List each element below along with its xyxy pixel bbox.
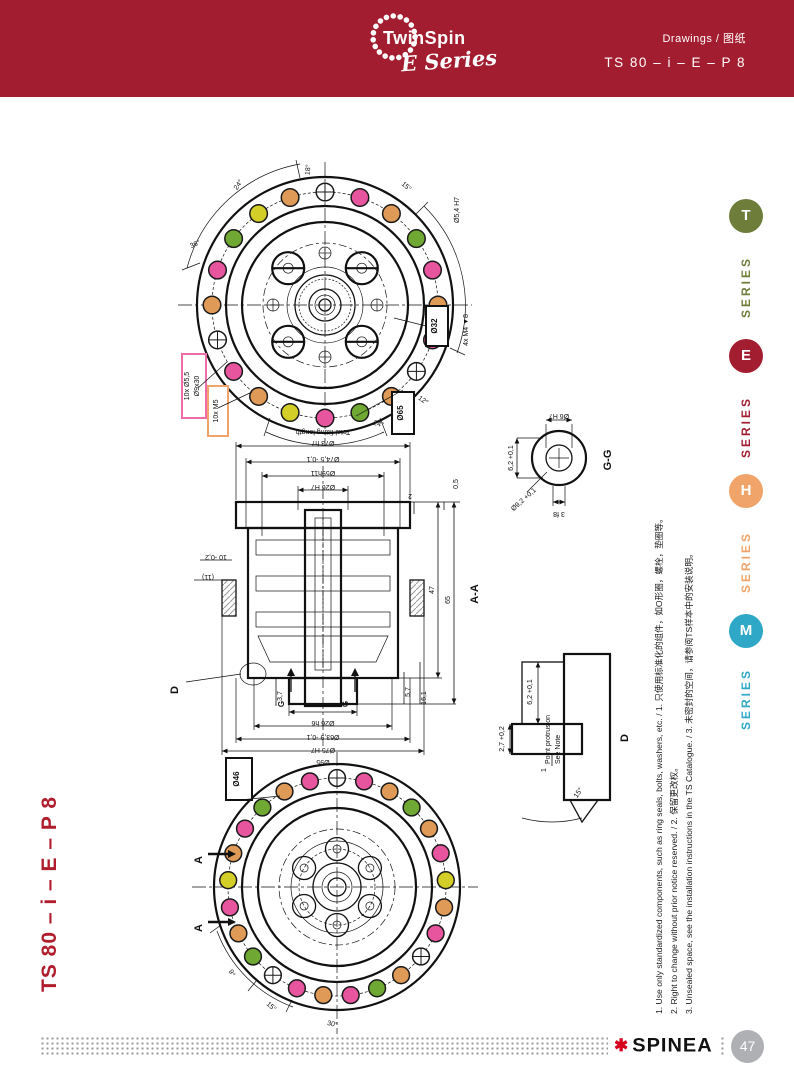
section-g-marker: G [277, 701, 286, 707]
catalogue-page: TwinSpin E Series Drawings / 图纸 TS 80 – … [0, 0, 794, 1077]
twinspin-logo: TwinSpin E Series [365, 4, 525, 92]
right-dimensions: 47 65 5,7 16,1 3,7 A-A [276, 502, 481, 706]
doc-type-label: Drawings / 图纸 [604, 30, 746, 46]
detail-d-marker: D [169, 686, 181, 694]
footnote-1: 1. Use only standardized components, suc… [652, 408, 667, 1014]
left-dimensions: 10 -0,2 (11) [194, 553, 232, 580]
dim-label: Ø59h11 [311, 469, 335, 476]
detail-gg-view-label: G-G [602, 450, 614, 471]
angle-label: 18° [304, 164, 313, 175]
series-label-m: SERIES [739, 654, 753, 744]
dim-label: (11) [202, 573, 214, 580]
series-badge-letter: M [740, 622, 753, 639]
header-right-block: Drawings / 图纸 TS 80 – i – E – P 8 [604, 30, 746, 70]
series-badge-e: E [729, 339, 763, 373]
detail-d-view-label: D [619, 734, 631, 742]
dim-label: Total fitting length [296, 428, 351, 435]
dim-label: 6,2 +0,1 [527, 679, 534, 705]
dim-label: 6,2 +0,1 [508, 445, 515, 471]
dim-label: 2 [408, 492, 412, 499]
note-line: See Note [554, 680, 564, 764]
angle-label: 24° [232, 178, 245, 191]
dim-label: Ø26 H7 [311, 483, 335, 490]
page-title-vertical: TS 80 – i – E – P 8 [38, 736, 62, 992]
back-dimension-arcs [210, 925, 295, 1012]
section-a-marker: A [193, 924, 205, 932]
detail-d-drawing: 6,2 +0,1 2,7 +0,2 1 15° D [492, 648, 647, 826]
dim-label: 3 f8 [553, 510, 565, 517]
dim-label-center-circle: Ø32 [430, 318, 439, 334]
angle-label: 9° [227, 968, 237, 978]
section-view-label: A-A [469, 584, 481, 604]
dim-label-bolt-holes-1: 10x Ø5,5 [184, 372, 191, 401]
back-view-drawing: A A Ø46 30° 15° 9° [182, 750, 487, 1042]
dim-label: 16,1 [421, 691, 428, 705]
angle-label: 30° [326, 1019, 338, 1029]
series-badge-h: H [729, 474, 763, 508]
series-badge-letter: E [741, 347, 751, 364]
dim-label: Ø74,5 -0,1 [306, 455, 339, 462]
dim-label: 5,7 [405, 687, 412, 697]
detail-d-circle [240, 663, 266, 685]
page-number-badge: 47 [731, 1030, 764, 1063]
dim-label: 65 [445, 596, 452, 604]
footnote-3: 3. Unsealed space, see the installation … [682, 408, 697, 1014]
dim-label-pitch-circle: Ø46 [232, 771, 241, 787]
dim-label-dowel: Ø5,4 H7 [454, 197, 461, 223]
series-badge-letter: H [741, 482, 752, 499]
section-aa-drawing: Total fitting length Ø73 h7 Ø74,5 -0,1 Ø… [158, 410, 488, 768]
dim-label: 1 [541, 768, 548, 772]
dim-label: Ø6 H7 [549, 412, 569, 419]
series-label-t: SERIES [739, 242, 753, 332]
spinea-logo: ✱ SPINEA [608, 1033, 719, 1059]
angle-label: 12° [417, 394, 430, 407]
header-bar: TwinSpin E Series Drawings / 图纸 TS 80 – … [0, 0, 794, 97]
series-badge-letter: T [741, 207, 750, 224]
logo-series-script: E Series [400, 45, 498, 77]
series-label-h: SERIES [739, 517, 753, 607]
angle-label: 15° [265, 1000, 278, 1013]
series-badge-m: M [729, 614, 763, 648]
series-badge-t: T [729, 199, 763, 233]
logo-brand-text: TwinSpin [383, 28, 466, 49]
spinea-flower-icon: ✱ [614, 1036, 628, 1056]
section-a-marker: A [193, 856, 205, 864]
angle-label: 36° [189, 238, 202, 250]
dim-label: 10 -0,2 [205, 553, 227, 560]
note-line: Point protrusion [544, 680, 554, 764]
dim-label: 3,7 [277, 691, 284, 701]
dim-label: Ø73 h7 [311, 439, 334, 446]
spinea-wordmark: SPINEA [632, 1035, 712, 1057]
series-label-e: SERIES [739, 382, 753, 472]
dim-label: Ø26 h6 [311, 719, 334, 726]
footnotes-block: 1. Use only standardized components, suc… [652, 408, 697, 1014]
front-view-drawing: 10x Ø5,5 Ø9x30 10x M5 Ø65 Ø32 Ø5,4 H7 4x… [170, 158, 480, 450]
dim-label: 0,5 [453, 479, 460, 489]
dim-label: 47 [429, 586, 436, 594]
footnote-2: 2. Right to change without prior notice … [667, 408, 682, 1014]
angle-label: 15° [400, 180, 413, 193]
dim-label: 2,7 +0,2 [499, 726, 506, 752]
point-protrusion-note: Point protrusion See Note [544, 680, 564, 764]
dim-label-tapped: 4x M4 ▼8 [463, 314, 470, 346]
doc-code-label: TS 80 – i – E – P 8 [604, 55, 746, 70]
dim-label: Ø9,2 +0,1 [510, 487, 538, 513]
dim-label: 15° [572, 786, 585, 799]
detail-gg-drawing: Ø6 H7 6,2 +0,1 Ø9,2 +0,1 3 f8 G-G [503, 404, 621, 522]
section-g-marker: G [341, 701, 350, 707]
